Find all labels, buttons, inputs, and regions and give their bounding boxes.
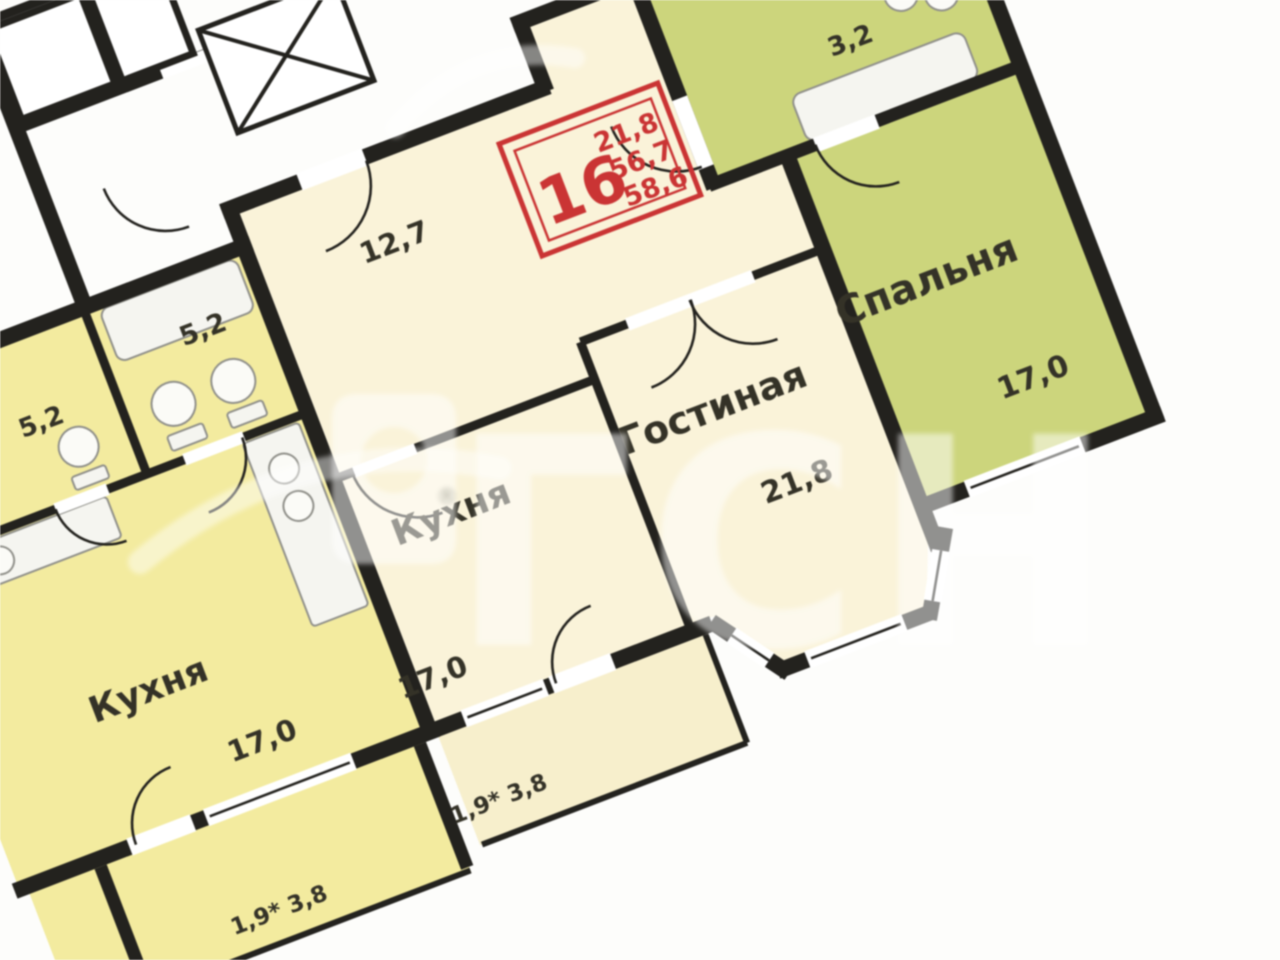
floor-plan-page: Спальня 17,0 Гостиная 21,8 Кухня 17,0 Ку… (0, 0, 1280, 960)
floor-plan: Спальня 17,0 Гостиная 21,8 Кухня 17,0 Ку… (0, 0, 1280, 960)
stair-flight-box (198, 0, 374, 133)
watermark-registered-icon: ® (436, 485, 458, 510)
watermark-text: ГСН (450, 377, 1126, 714)
